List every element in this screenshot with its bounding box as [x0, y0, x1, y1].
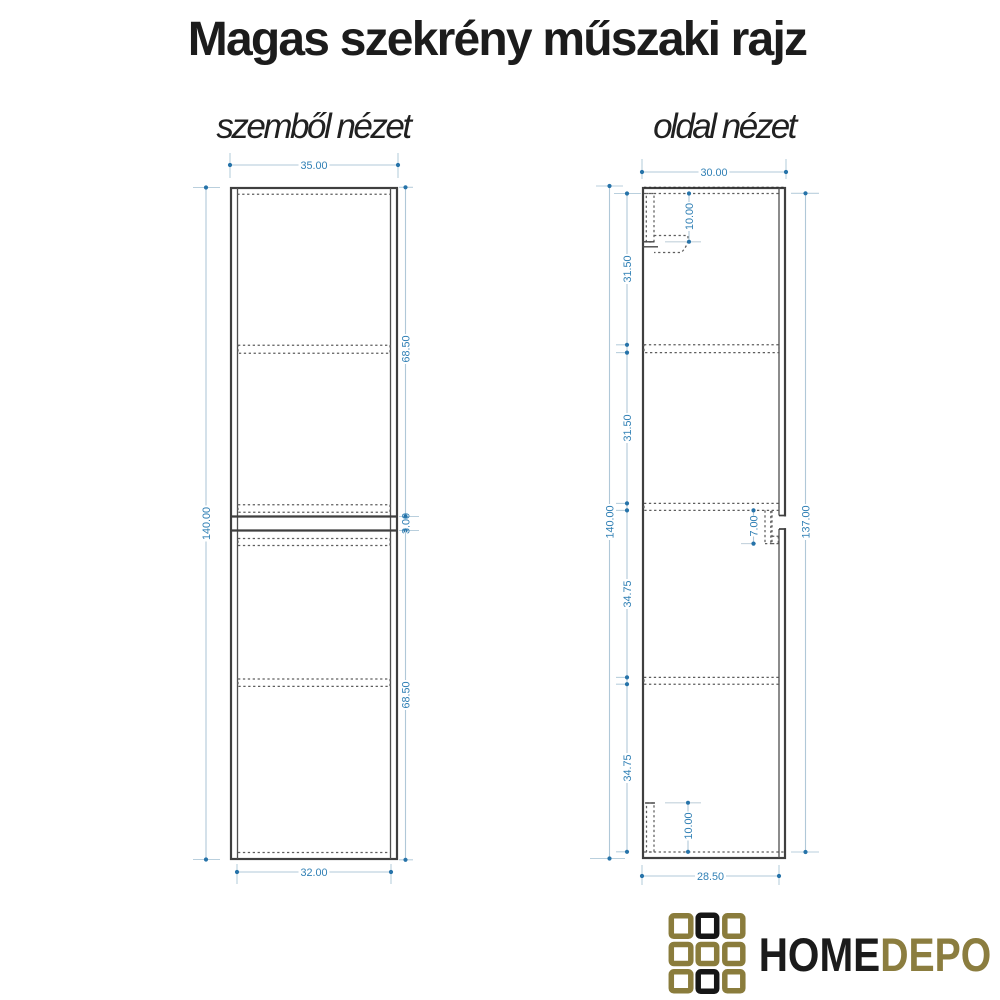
svg-text:10.00: 10.00: [684, 203, 696, 230]
svg-text:140.00: 140.00: [605, 505, 617, 538]
svg-text:34.75: 34.75: [622, 754, 634, 781]
svg-text:34.75: 34.75: [622, 580, 634, 607]
svg-text:31.50: 31.50: [622, 414, 634, 441]
svg-text:31.50: 31.50: [622, 255, 634, 282]
svg-text:7.00: 7.00: [749, 515, 761, 536]
svg-text:137.00: 137.00: [801, 505, 813, 538]
svg-text:10.00: 10.00: [683, 812, 695, 839]
svg-text:Magas szekrény műszaki rajz: Magas szekrény műszaki rajz: [188, 13, 807, 66]
svg-text:28.50: 28.50: [697, 871, 724, 883]
svg-text:32.00: 32.00: [300, 867, 327, 879]
svg-text:HOME: HOME: [759, 928, 881, 981]
svg-text:30.00: 30.00: [700, 167, 727, 179]
svg-text:68.50: 68.50: [401, 681, 413, 708]
svg-text:35.00: 35.00: [300, 160, 327, 172]
svg-text:DEPO: DEPO: [880, 928, 991, 981]
svg-text:68.50: 68.50: [401, 335, 413, 362]
svg-text:szemből nézet: szemből nézet: [216, 107, 413, 146]
svg-text:3.00: 3.00: [401, 513, 413, 534]
svg-text:oldal nézet: oldal nézet: [653, 107, 799, 146]
svg-text:140.00: 140.00: [201, 507, 213, 540]
